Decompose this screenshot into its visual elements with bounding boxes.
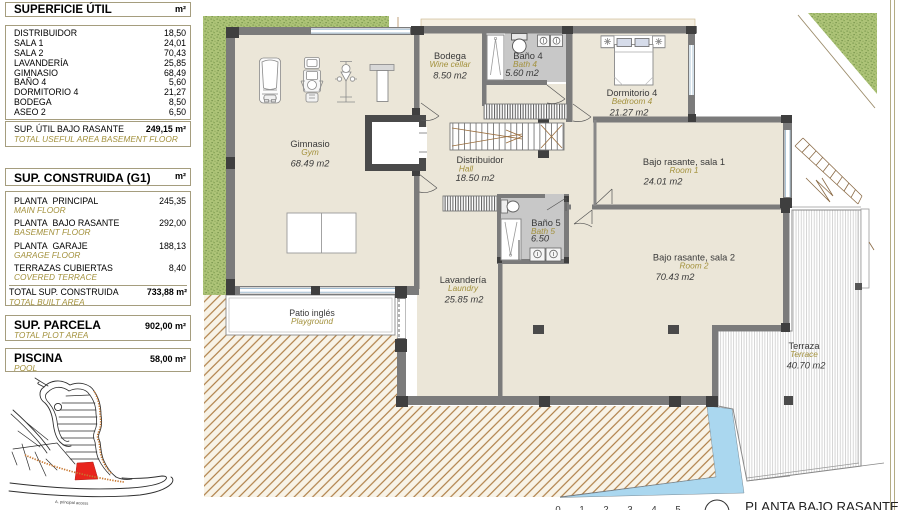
svg-text:1: 1 [579,505,584,510]
svg-text:Hall: Hall [459,164,474,174]
svg-text:Wine cellar: Wine cellar [430,59,472,69]
svg-text:25.85 m2: 25.85 m2 [444,295,485,305]
svg-text:PLANTA BAJO RASANTE: PLANTA BAJO RASANTE [745,499,899,510]
svg-text:2: 2 [603,505,608,510]
svg-text:68.49 m2: 68.49 m2 [291,159,331,169]
svg-text:Terrace: Terrace [790,349,818,359]
svg-text:A. principal access: A. principal access [55,499,89,506]
svg-text:18.50 m2: 18.50 m2 [456,173,496,183]
svg-text:21.27 m2: 21.27 m2 [609,108,650,118]
svg-text:6.50: 6.50 [531,234,550,244]
svg-text:0: 0 [555,505,560,510]
svg-text:Playground: Playground [291,316,333,326]
svg-text:Room 2: Room 2 [679,261,708,271]
svg-text:24.01 m2: 24.01 m2 [643,177,684,187]
svg-text:5.60 m2: 5.60 m2 [505,68,539,78]
svg-text:4: 4 [651,505,656,510]
svg-text:Gym: Gym [301,147,319,157]
svg-text:Bedroom 4: Bedroom 4 [612,96,653,106]
svg-text:8.50 m2: 8.50 m2 [433,71,467,81]
svg-text:70.43 m2: 70.43 m2 [656,272,696,282]
svg-text:5: 5 [675,505,680,510]
svg-text:3: 3 [627,505,632,510]
svg-text:40.70 m2: 40.70 m2 [787,361,827,371]
svg-text:Laundry: Laundry [448,283,479,293]
svg-text:Room 1: Room 1 [669,165,698,175]
